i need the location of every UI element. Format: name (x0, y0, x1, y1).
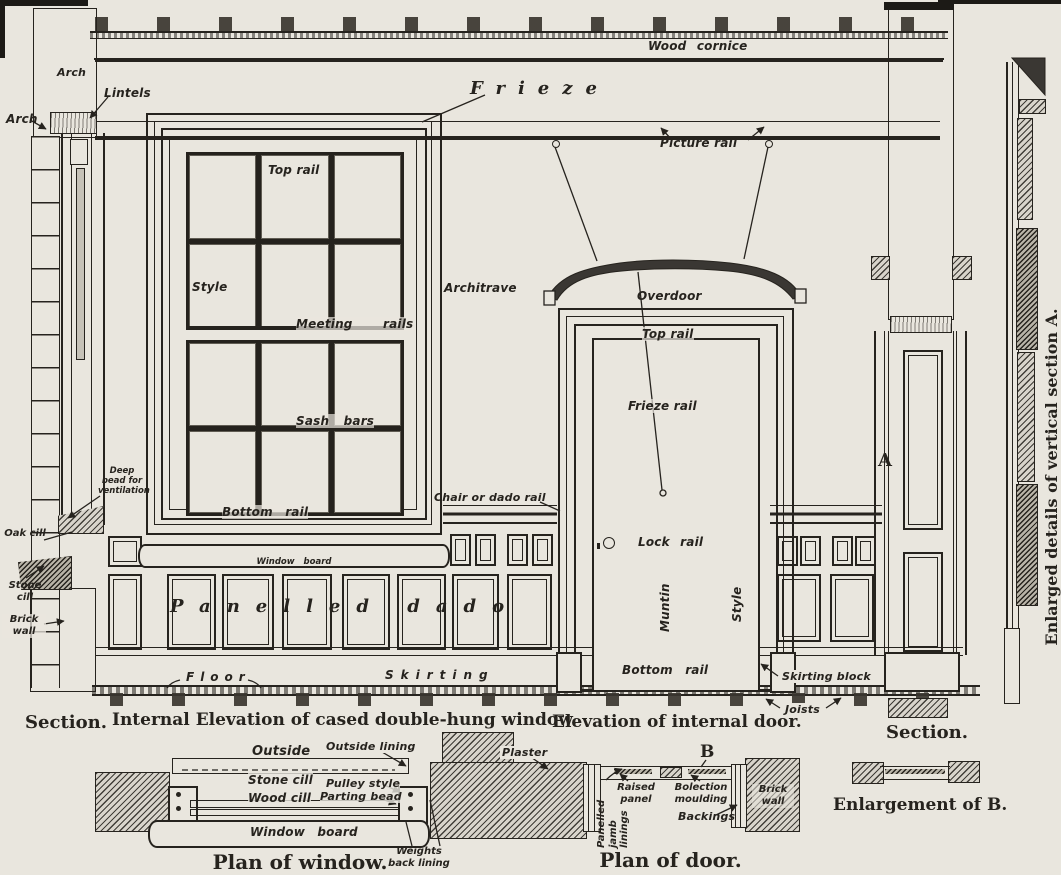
bolection-moulding-label: Bolection moulding (666, 782, 736, 806)
arch-wall-label: Arch (55, 66, 88, 79)
lock-rail-label: Lock rail (638, 535, 703, 549)
stone-cill-label: Stone cill (2, 580, 48, 604)
right-section-caption: Section. (872, 722, 982, 743)
outside-label: Outside (252, 744, 310, 759)
skirting-block-label: Skirting block (782, 670, 871, 683)
overdoor-end-left (544, 291, 555, 305)
deep-bead-label: Deep bead for ventilation (98, 466, 146, 497)
brick-wall-label: Brick wall (2, 614, 46, 638)
leader-lines-overlay (0, 0, 1061, 875)
outside-lining-label: Outside lining (326, 740, 416, 753)
enlargement-b-caption: Enlargement of B. (833, 795, 995, 815)
window-bottom-rail-label: Bottom rail (222, 505, 308, 519)
pulley-style-label: Pulley style (326, 777, 400, 790)
floor-label: Floor (186, 670, 251, 684)
parting-bead-label: Parting bead (320, 790, 402, 803)
overdoor-end-right (795, 289, 806, 303)
chair-rail-label: Chair or dado rail (434, 491, 546, 504)
door-top-rail-label: Top rail (642, 327, 694, 341)
lintels-label: Lintels (104, 86, 151, 100)
window-top-rail-label: Top rail (268, 163, 320, 177)
oak-cill-label: Oak cill (4, 528, 46, 540)
engraving-plate: Wood cornice Frieze Picture rail Arch Li… (0, 0, 1061, 875)
door-style-label: Style (730, 576, 744, 622)
enlarged-note: Enlarged details of vertical section A. (1042, 242, 1061, 712)
sash-bars-label: Sash bars (296, 414, 374, 428)
plan-window-board-label: Window board (250, 825, 358, 839)
door-caption: Elevation of internal door. (552, 712, 782, 732)
backings-label: Backings (678, 810, 735, 823)
plaster-label: Plaster (500, 746, 549, 759)
plan-door-caption: Plan of door. (588, 848, 753, 872)
left-section-caption: Section. (18, 712, 114, 733)
plan-b-marker: B (700, 742, 714, 762)
skirting-label: Skirting (385, 668, 495, 682)
section-a-marker: A (878, 450, 892, 471)
plan-brick-wall-label: Brick wall (752, 784, 794, 808)
plan-stone-cill-label: Stone cill (248, 773, 313, 787)
wood-cill-label: Wood cill (248, 791, 311, 805)
meeting-rails-label: Meeting rails (296, 317, 413, 331)
frieze-rail-label: Frieze rail (628, 399, 697, 413)
door-bottom-rail-label: Bottom rail (622, 663, 708, 677)
frieze-label: Frieze (470, 78, 610, 99)
muntin-label: Muntin (658, 578, 672, 632)
picture-rail-label: Picture rail (660, 136, 737, 150)
architrave-label: Architrave (444, 281, 517, 295)
plan-window-caption: Plan of window. (200, 850, 400, 874)
raised-panel-label: Raised panel (610, 782, 662, 806)
window-caption: Internal Elevation of cased double-hung … (112, 710, 524, 730)
arch-label: Arch (6, 112, 38, 126)
panelled-dado-label: Panelled dado (170, 596, 520, 617)
overdoor-label: Overdoor (637, 289, 702, 303)
wood-cornice-label: Wood cornice (648, 39, 747, 53)
window-style-label: Style (192, 280, 227, 294)
